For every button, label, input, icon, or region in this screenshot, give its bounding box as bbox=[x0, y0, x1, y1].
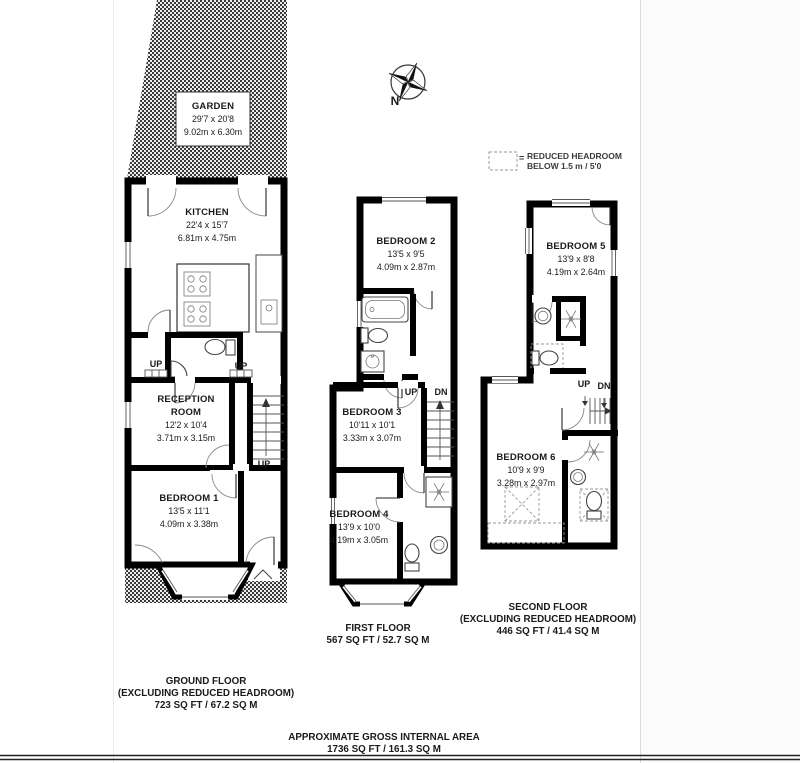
bedroom-1-label: BEDROOM 1 13'5 x 11'1 4.09m x 3.38m bbox=[159, 492, 218, 531]
room-dim-imperial: 22'4 x 15'7 bbox=[178, 219, 236, 232]
garden-name: GARDEN bbox=[184, 100, 242, 113]
compass-north-label: N bbox=[391, 94, 400, 108]
room-dim-metric: 3.28m x 2.97m bbox=[496, 477, 555, 490]
stair-up-label: UP bbox=[578, 379, 591, 389]
sink-icon bbox=[361, 351, 384, 372]
toilet-icon bbox=[205, 340, 235, 356]
room-dim-imperial: 12'2 x 10'4 bbox=[144, 419, 228, 432]
stair-up-label: UP bbox=[235, 361, 248, 371]
room-dim-metric: 4.09m x 3.38m bbox=[159, 518, 218, 531]
ground-floor-title: GROUND FLOOR (EXCLUDING REDUCED HEADROOM… bbox=[118, 676, 294, 712]
room-name: BEDROOM 6 bbox=[496, 451, 555, 464]
bedroom-2-label: BEDROOM 2 13'5 x 9'5 4.09m x 2.87m bbox=[376, 235, 435, 274]
sink-icon bbox=[431, 537, 448, 554]
room-dim-metric: 4.19m x 2.64m bbox=[546, 266, 605, 279]
bedroom-3-label: BEDROOM 3 10'11 x 10'1 3.33m x 3.07m bbox=[342, 406, 401, 445]
room-name: BEDROOM 2 bbox=[376, 235, 435, 248]
garden-label: GARDEN 29'7 x 20'8 9.02m x 6.30m bbox=[184, 100, 242, 139]
reception-room-label: RECEPTION ROOM 12'2 x 10'4 3.71m x 3.15m bbox=[144, 393, 228, 445]
footer-line1: APPROXIMATE GROSS INTERNAL AREA bbox=[288, 732, 479, 744]
stair-up-label: UP bbox=[150, 359, 163, 369]
stair-down-label: DN bbox=[435, 387, 448, 397]
gross-internal-area-footer: APPROXIMATE GROSS INTERNAL AREA 1736 SQ … bbox=[288, 732, 479, 756]
room-dim-imperial: 10'11 x 10'1 bbox=[342, 419, 401, 432]
bedroom-5-label: BEDROOM 5 13'9 x 8'8 4.19m x 2.64m bbox=[546, 240, 605, 279]
floor-title-line1: SECOND FLOOR bbox=[460, 602, 636, 614]
page-right-margin bbox=[641, 0, 800, 763]
room-dim-imperial: 13'9 x 8'8 bbox=[546, 253, 605, 266]
toilet-icon bbox=[405, 544, 419, 571]
room-name: RECEPTION ROOM bbox=[144, 393, 228, 419]
bathtub-icon bbox=[362, 297, 408, 322]
bedroom-4-label: BEDROOM 4 13'9 x 10'0 4.19m x 3.05m bbox=[329, 508, 388, 547]
reduced-headroom-swatch bbox=[489, 152, 517, 170]
room-dim-metric: 3.71m x 3.15m bbox=[144, 432, 228, 445]
room-name: BEDROOM 5 bbox=[546, 240, 605, 253]
room-dim-metric: 3.33m x 3.07m bbox=[342, 432, 401, 445]
room-dim-imperial: 13'5 x 11'1 bbox=[159, 505, 218, 518]
floor-title-line3: 446 SQ FT / 41.4 SQ M bbox=[460, 626, 636, 638]
kitchen-counter bbox=[256, 255, 282, 332]
floor-title-line2: (EXCLUDING REDUCED HEADROOM) bbox=[460, 614, 636, 626]
legend-line2: BELOW 1.5 m / 5'0 bbox=[527, 162, 622, 172]
kitchen-label: KITCHEN 22'4 x 15'7 6.81m x 4.75m bbox=[178, 206, 236, 245]
floor-title-line1: GROUND FLOOR bbox=[118, 676, 294, 688]
kitchen-island bbox=[177, 264, 249, 332]
room-name: BEDROOM 3 bbox=[342, 406, 401, 419]
floorplan-page: GARDEN 29'7 x 20'8 9.02m x 6.30m KITCHEN… bbox=[0, 0, 800, 763]
room-dim-imperial: 13'9 x 10'0 bbox=[329, 521, 388, 534]
floor-title-line2: 567 SQ FT / 52.7 SQ M bbox=[327, 635, 430, 647]
room-dim-imperial: 10'9 x 9'9 bbox=[496, 464, 555, 477]
stair-down-label: DN bbox=[598, 381, 611, 391]
garden-dim-imperial: 29'7 x 20'8 bbox=[184, 113, 242, 126]
floorplan-graphics bbox=[0, 0, 800, 763]
floor-title-line2: (EXCLUDING REDUCED HEADROOM) bbox=[118, 688, 294, 700]
bay-window bbox=[158, 565, 252, 600]
footer-line2: 1736 SQ FT / 161.3 SQ M bbox=[288, 744, 479, 756]
sink-icon bbox=[535, 308, 551, 324]
bay-window bbox=[340, 582, 424, 607]
stair-up-label: UP bbox=[405, 387, 418, 397]
shower-icon bbox=[426, 477, 452, 507]
room-dim-metric: 6.81m x 4.75m bbox=[178, 232, 236, 245]
sink-icon bbox=[571, 470, 586, 485]
room-dim-metric: 4.09m x 2.87m bbox=[376, 261, 435, 274]
toilet-icon bbox=[361, 328, 388, 343]
reduced-headroom-legend: REDUCED HEADROOM BELOW 1.5 m / 5'0 bbox=[527, 152, 622, 171]
first-floor-title: FIRST FLOOR 567 SQ FT / 52.7 SQ M bbox=[327, 623, 430, 647]
room-dim-metric: 4.19m x 3.05m bbox=[329, 534, 388, 547]
bedroom-6-label: BEDROOM 6 10'9 x 9'9 3.28m x 2.97m bbox=[496, 451, 555, 490]
floor-title-line3: 723 SQ FT / 67.2 SQ M bbox=[118, 700, 294, 712]
room-name: BEDROOM 4 bbox=[329, 508, 388, 521]
room-name: KITCHEN bbox=[178, 206, 236, 219]
room-dim-imperial: 13'5 x 9'5 bbox=[376, 248, 435, 261]
room-name: BEDROOM 1 bbox=[159, 492, 218, 505]
legend-equals: = bbox=[519, 153, 524, 163]
second-floor-title: SECOND FLOOR (EXCLUDING REDUCED HEADROOM… bbox=[460, 602, 636, 638]
stair-up-label: UP bbox=[258, 459, 271, 469]
floor-title-line1: FIRST FLOOR bbox=[327, 623, 430, 635]
garden-dim-metric: 9.02m x 6.30m bbox=[184, 126, 242, 139]
garden-hatch bbox=[127, 0, 287, 179]
